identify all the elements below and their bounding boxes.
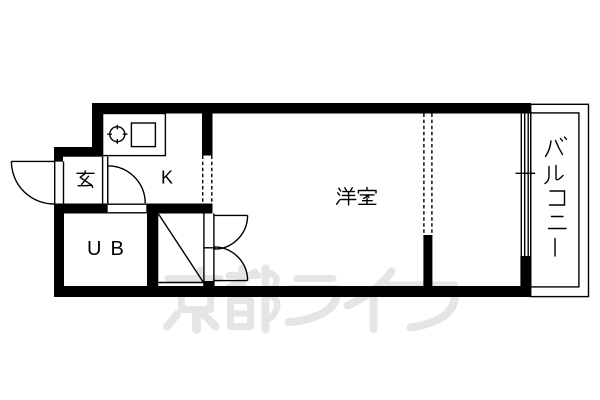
svg-text:K: K — [161, 167, 173, 187]
svg-text:UB: UB — [87, 238, 133, 260]
